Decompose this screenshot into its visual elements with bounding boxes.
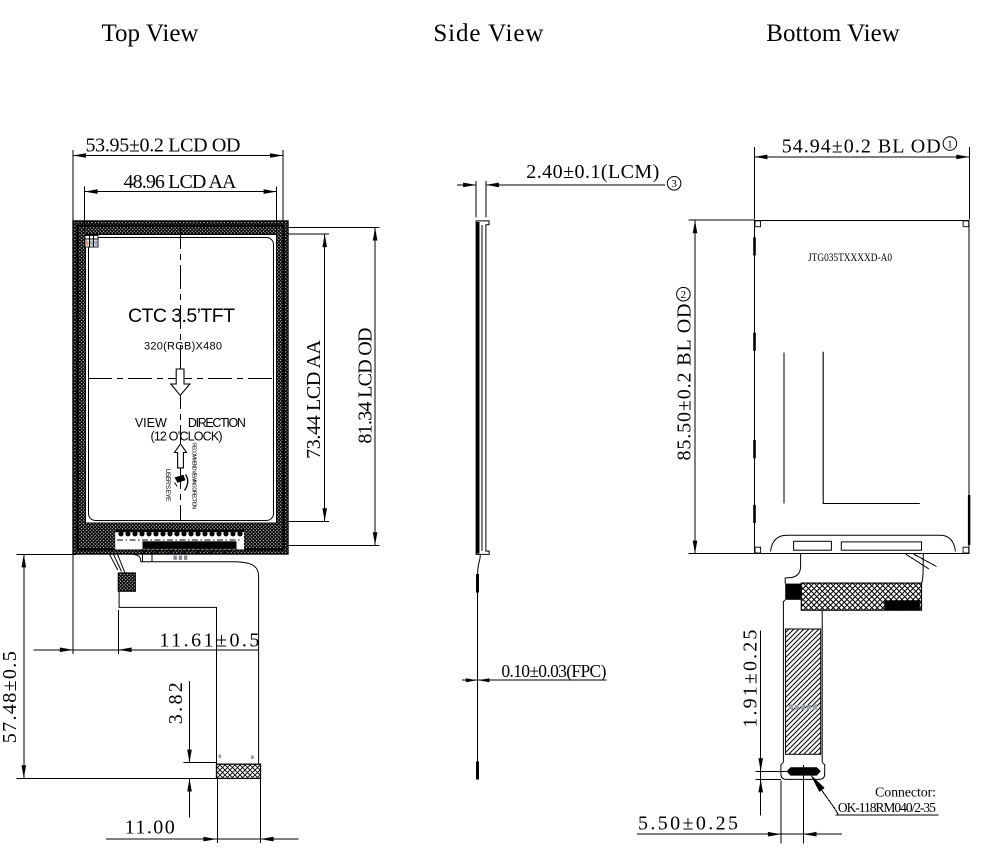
svg-text:Bottom View: Bottom View [766, 20, 899, 47]
svg-text:1.91±0.25: 1.91±0.25 [740, 630, 762, 728]
svg-text:81.34 LCD OD: 81.34 LCD OD [355, 328, 377, 444]
svg-text:11.00: 11.00 [125, 817, 175, 839]
svg-text:48.96 LCD AA: 48.96 LCD AA [124, 171, 238, 193]
svg-text:53.95±0.2 LCD OD: 53.95±0.2 LCD OD [86, 135, 241, 157]
svg-text:OK-118RM040/2-35: OK-118RM040/2-35 [838, 800, 936, 815]
svg-text:JTG035TXXXXD-A0: JTG035TXXXXD-A0 [808, 252, 892, 264]
svg-text:Connector:: Connector: [875, 786, 936, 801]
svg-text:54.94±0.2 BL OD: 54.94±0.2 BL OD [782, 136, 941, 158]
svg-text:2: 2 [681, 289, 687, 301]
svg-text:3: 3 [671, 178, 677, 190]
svg-text:11.61±0.5: 11.61±0.5 [159, 630, 259, 652]
svg-text:Side View: Side View [433, 20, 543, 47]
svg-text:VIEW: VIEW [135, 416, 167, 430]
svg-text:Top View: Top View [102, 20, 199, 47]
svg-text:320(RGB)X480: 320(RGB)X480 [144, 341, 222, 353]
svg-text:5.50±0.25: 5.50±0.25 [638, 813, 738, 835]
svg-text:73.44 LCD AA: 73.44 LCD AA [303, 339, 325, 459]
svg-text:3.82: 3.82 [165, 682, 187, 724]
svg-text:RECOMMEND VIEWING DIRECTION: RECOMMEND VIEWING DIRECTION [191, 443, 197, 509]
svg-text:1: 1 [947, 138, 953, 150]
svg-text:2.40±0.1(LCM): 2.40±0.1(LCM) [526, 161, 659, 183]
svg-text:85.50±0.2 BL OD: 85.50±0.2 BL OD [674, 304, 696, 461]
svg-text:(12 O’CLOCK): (12 O’CLOCK) [151, 430, 223, 444]
svg-text:0.10±0.03(FPC): 0.10±0.03(FPC) [501, 661, 606, 681]
svg-text:DIRECTION: DIRECTION [188, 416, 246, 430]
svg-text:CTC 3.5’TFT: CTC 3.5’TFT [128, 305, 235, 327]
svg-text:USER’S EYE: USER’S EYE [164, 469, 171, 503]
svg-text:57.48±0.5: 57.48±0.5 [0, 651, 21, 743]
